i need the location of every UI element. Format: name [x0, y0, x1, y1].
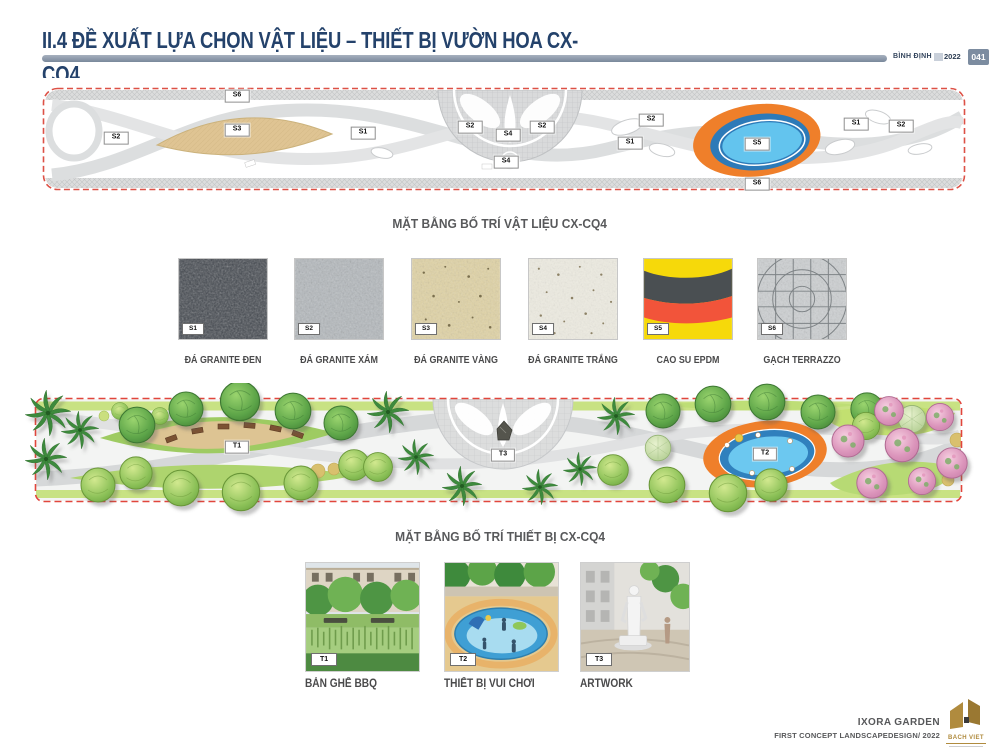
swatch-tag: S6 [761, 323, 783, 335]
plan-label-s2: S2 [639, 114, 664, 127]
footer-subtitle: FIRST CONCEPT LANDSCAPEDESIGN/ 2022 [774, 731, 940, 740]
page-number-badge: 041 [968, 49, 989, 65]
material-name: ĐÁ GRANITE XÁM [300, 354, 378, 366]
material-card-s4: S4 ĐÁ GRANITE TRẮNG [528, 258, 618, 340]
plan-label-s4: S4 [496, 129, 521, 142]
material-name: ĐÁ GRANITE TRẮNG [528, 354, 618, 366]
plan-label-t3: T3 [491, 449, 515, 462]
material-card-s2: S2 ĐÁ GRANITE XÁM [294, 258, 384, 340]
equipment-tag: T3 [586, 653, 612, 666]
material-name: CAO SU EPDM [657, 354, 720, 366]
swatch-tag: S5 [647, 323, 669, 335]
material-card-s6: S6 GẠCH TERRAZZO [757, 258, 847, 340]
year-chip-icon [934, 53, 943, 61]
page-title-line2: CQ4 [42, 61, 80, 78]
logo-divider [946, 743, 986, 744]
equipment-name: BÀN GHẾ BBQ [305, 678, 377, 690]
bach-viet-logo: BACH VIET [943, 697, 989, 749]
logo-text: BACH VIET [943, 735, 989, 741]
plan-label-s6: S6 [225, 90, 250, 103]
plan-label-s2: S2 [530, 121, 555, 134]
project-name: IXORA GARDEN [774, 717, 940, 728]
plan-label-s1: S1 [844, 118, 869, 131]
equipment-card-t3: T3 ARTWORK [580, 562, 690, 672]
equipment-name: THIẾT BỊ VUI CHƠI [444, 678, 535, 690]
logo-mark-icon [944, 697, 988, 729]
page-title-line1: II.4 ĐỀ XUẤT LỰA CHỌN VẬT LIỆU – THIẾT B… [42, 27, 578, 54]
plan-label-s2: S2 [104, 132, 129, 145]
material-name: ĐÁ GRANITE VÀNG [414, 354, 498, 366]
equipment-card-t2: T2 THIẾT BỊ VUI CHƠI [444, 562, 559, 672]
materials-plan: S6S2S3S1S2S4S2S4S2S1S5S1S2S6 [42, 87, 966, 191]
plan-label-t2: T2 [753, 448, 777, 461]
swatch-tag: S3 [415, 323, 437, 335]
header-year: 2022 [934, 52, 961, 61]
slide-page: II.4 ĐỀ XUẤT LỰA CHỌN VẬT LIỆU – THIẾT B… [0, 0, 1000, 750]
material-card-s3: S3 ĐÁ GRANITE VÀNG [411, 258, 501, 340]
material-card-s1: S1 ĐÁ GRANITE ĐEN [178, 258, 268, 340]
material-name: GẠCH TERRAZZO [763, 354, 840, 366]
logo-divider-2 [949, 746, 983, 747]
plan-label-t1: T1 [225, 441, 249, 454]
material-name: ĐÁ GRANITE ĐEN [185, 354, 262, 366]
swatch-tag: S2 [298, 323, 320, 335]
plan-label-s4: S4 [494, 156, 519, 169]
material-card-s5: S5 CAO SU EPDM [643, 258, 733, 340]
title-underline-bar [42, 55, 887, 62]
equipment-plan: T1T3T2 [0, 383, 1000, 518]
equipment-name: ARTWORK [580, 678, 633, 690]
plan-label-s5: S5 [745, 138, 770, 151]
swatch-tag: S1 [182, 323, 204, 335]
page-title-line2-clipped: CQ4 [42, 61, 89, 78]
plan-label-s1: S1 [351, 127, 376, 140]
year-text: 2022 [944, 52, 961, 61]
equipment-tag: T1 [311, 653, 337, 666]
equipment-tag: T2 [450, 653, 476, 666]
plan-label-s3: S3 [225, 124, 250, 137]
footer-text-block: IXORA GARDEN FIRST CONCEPT LANDSCAPEDESI… [774, 717, 940, 740]
equipment-card-t1: T1 BÀN GHẾ BBQ [305, 562, 420, 672]
plan-label-s2: S2 [458, 121, 483, 134]
header-location: BÌNH ĐỊNH [893, 53, 932, 60]
equipment-plan-caption: MẶT BẰNG BỐ TRÍ THIẾT BỊ CX-CQ4 [0, 529, 1000, 544]
plan-label-s2: S2 [889, 120, 914, 133]
plan-label-s6: S6 [745, 178, 770, 191]
swatch-tag: S4 [532, 323, 554, 335]
materials-plan-caption: MẶT BẰNG BỐ TRÍ VẬT LIỆU CX-CQ4 [0, 216, 1000, 231]
plan-label-s1: S1 [618, 137, 643, 150]
